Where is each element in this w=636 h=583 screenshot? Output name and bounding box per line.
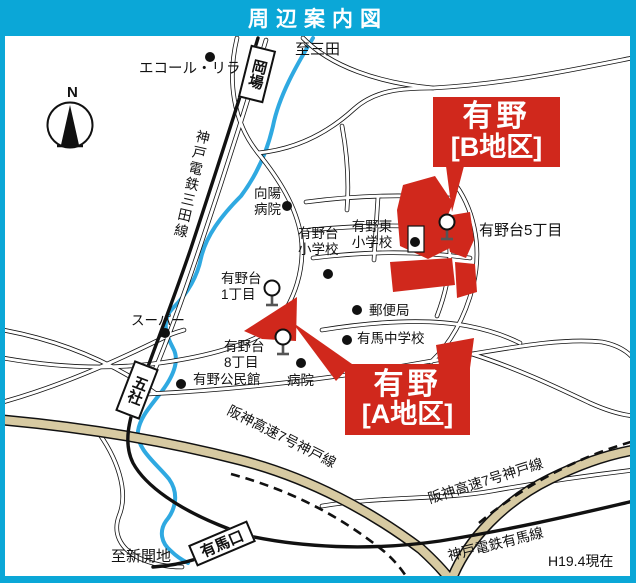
district-a-label-line2: [A地区] (362, 400, 453, 430)
label-post-office: 郵便局 (369, 303, 410, 319)
hospital-dot (296, 358, 306, 368)
label-koyo-hospital: 向陽 病院 (254, 186, 281, 218)
label-hospital: 病院 (287, 373, 314, 389)
label-arinohigashi-elementary: 有野東 小学校 (343, 219, 401, 251)
district-b-label: 有野 [B地区] (433, 97, 560, 167)
community-hall-dot (176, 379, 186, 389)
district-b-label-line2: [B地区] (451, 133, 542, 163)
arinohigashi-elementary-dot (410, 237, 420, 247)
arima-junior-high-dot (342, 335, 352, 345)
label-ecole-lila: エコール・リラ (139, 61, 241, 78)
district-a-label-line1: 有野 (374, 369, 442, 401)
supermarket-dot (160, 328, 170, 338)
label-to-shinkaichi: 至新開地 (111, 548, 171, 566)
koyo-hospital-dot (282, 201, 292, 211)
label-arima-junior-high: 有馬中学校 (357, 331, 425, 347)
district-a-label: 有野 [A地区] (345, 364, 470, 435)
label-supermarket: スーパー (131, 313, 185, 329)
hanshin-expressway (5, 420, 630, 576)
district-b-label-line1: 有野 (463, 101, 531, 133)
label-arinodai-1chome: 有野台 1丁目 (221, 271, 262, 303)
page-title: 周辺案内図 (0, 0, 636, 36)
label-community-hall: 有野公民館 (193, 372, 261, 388)
post-office-dot (352, 305, 362, 315)
label-to-sanda: 至三田 (295, 41, 340, 59)
chome-marker-1chome (265, 281, 280, 306)
compass-north-label: N (67, 84, 78, 101)
chome-marker-8chome (276, 330, 291, 355)
compass-icon (48, 103, 93, 148)
area-guide-map: N 至三田 エコール・リラ 向陽 病院 有野台 小学校 有野東 小学校 有野台5… (5, 36, 630, 576)
label-arinodai-8chome: 有野台 8丁目 (224, 339, 265, 371)
map-window: 周辺案内図 (0, 0, 636, 583)
label-arinodai-elementary: 有野台 小学校 (298, 226, 339, 258)
arinodai-elementary-dot (323, 269, 333, 279)
label-arinodai-5chome: 有野台5丁目 (479, 222, 562, 240)
label-as-of-date: H19.4現在 (548, 553, 613, 570)
